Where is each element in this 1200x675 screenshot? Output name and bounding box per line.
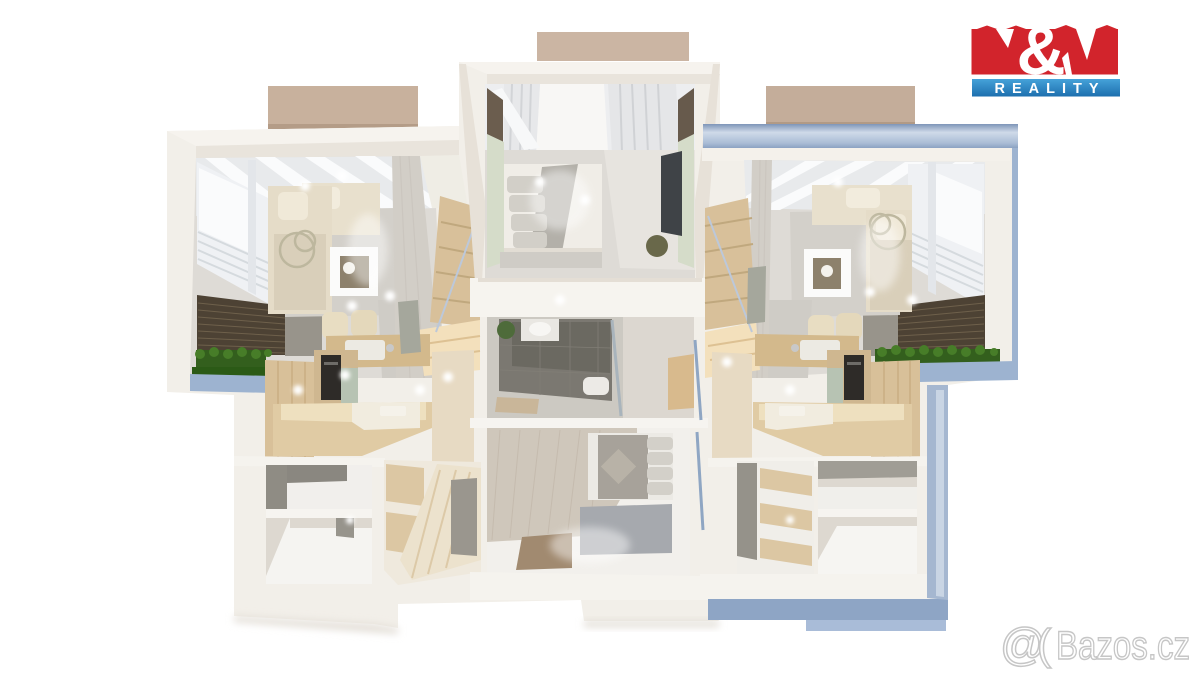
svg-text:&: &: [1016, 13, 1065, 89]
svg-text:(: (: [1037, 621, 1052, 669]
svg-text:Bazos.cz: Bazos.cz: [1056, 624, 1190, 668]
svg-text:REALITY: REALITY: [994, 81, 1105, 97]
